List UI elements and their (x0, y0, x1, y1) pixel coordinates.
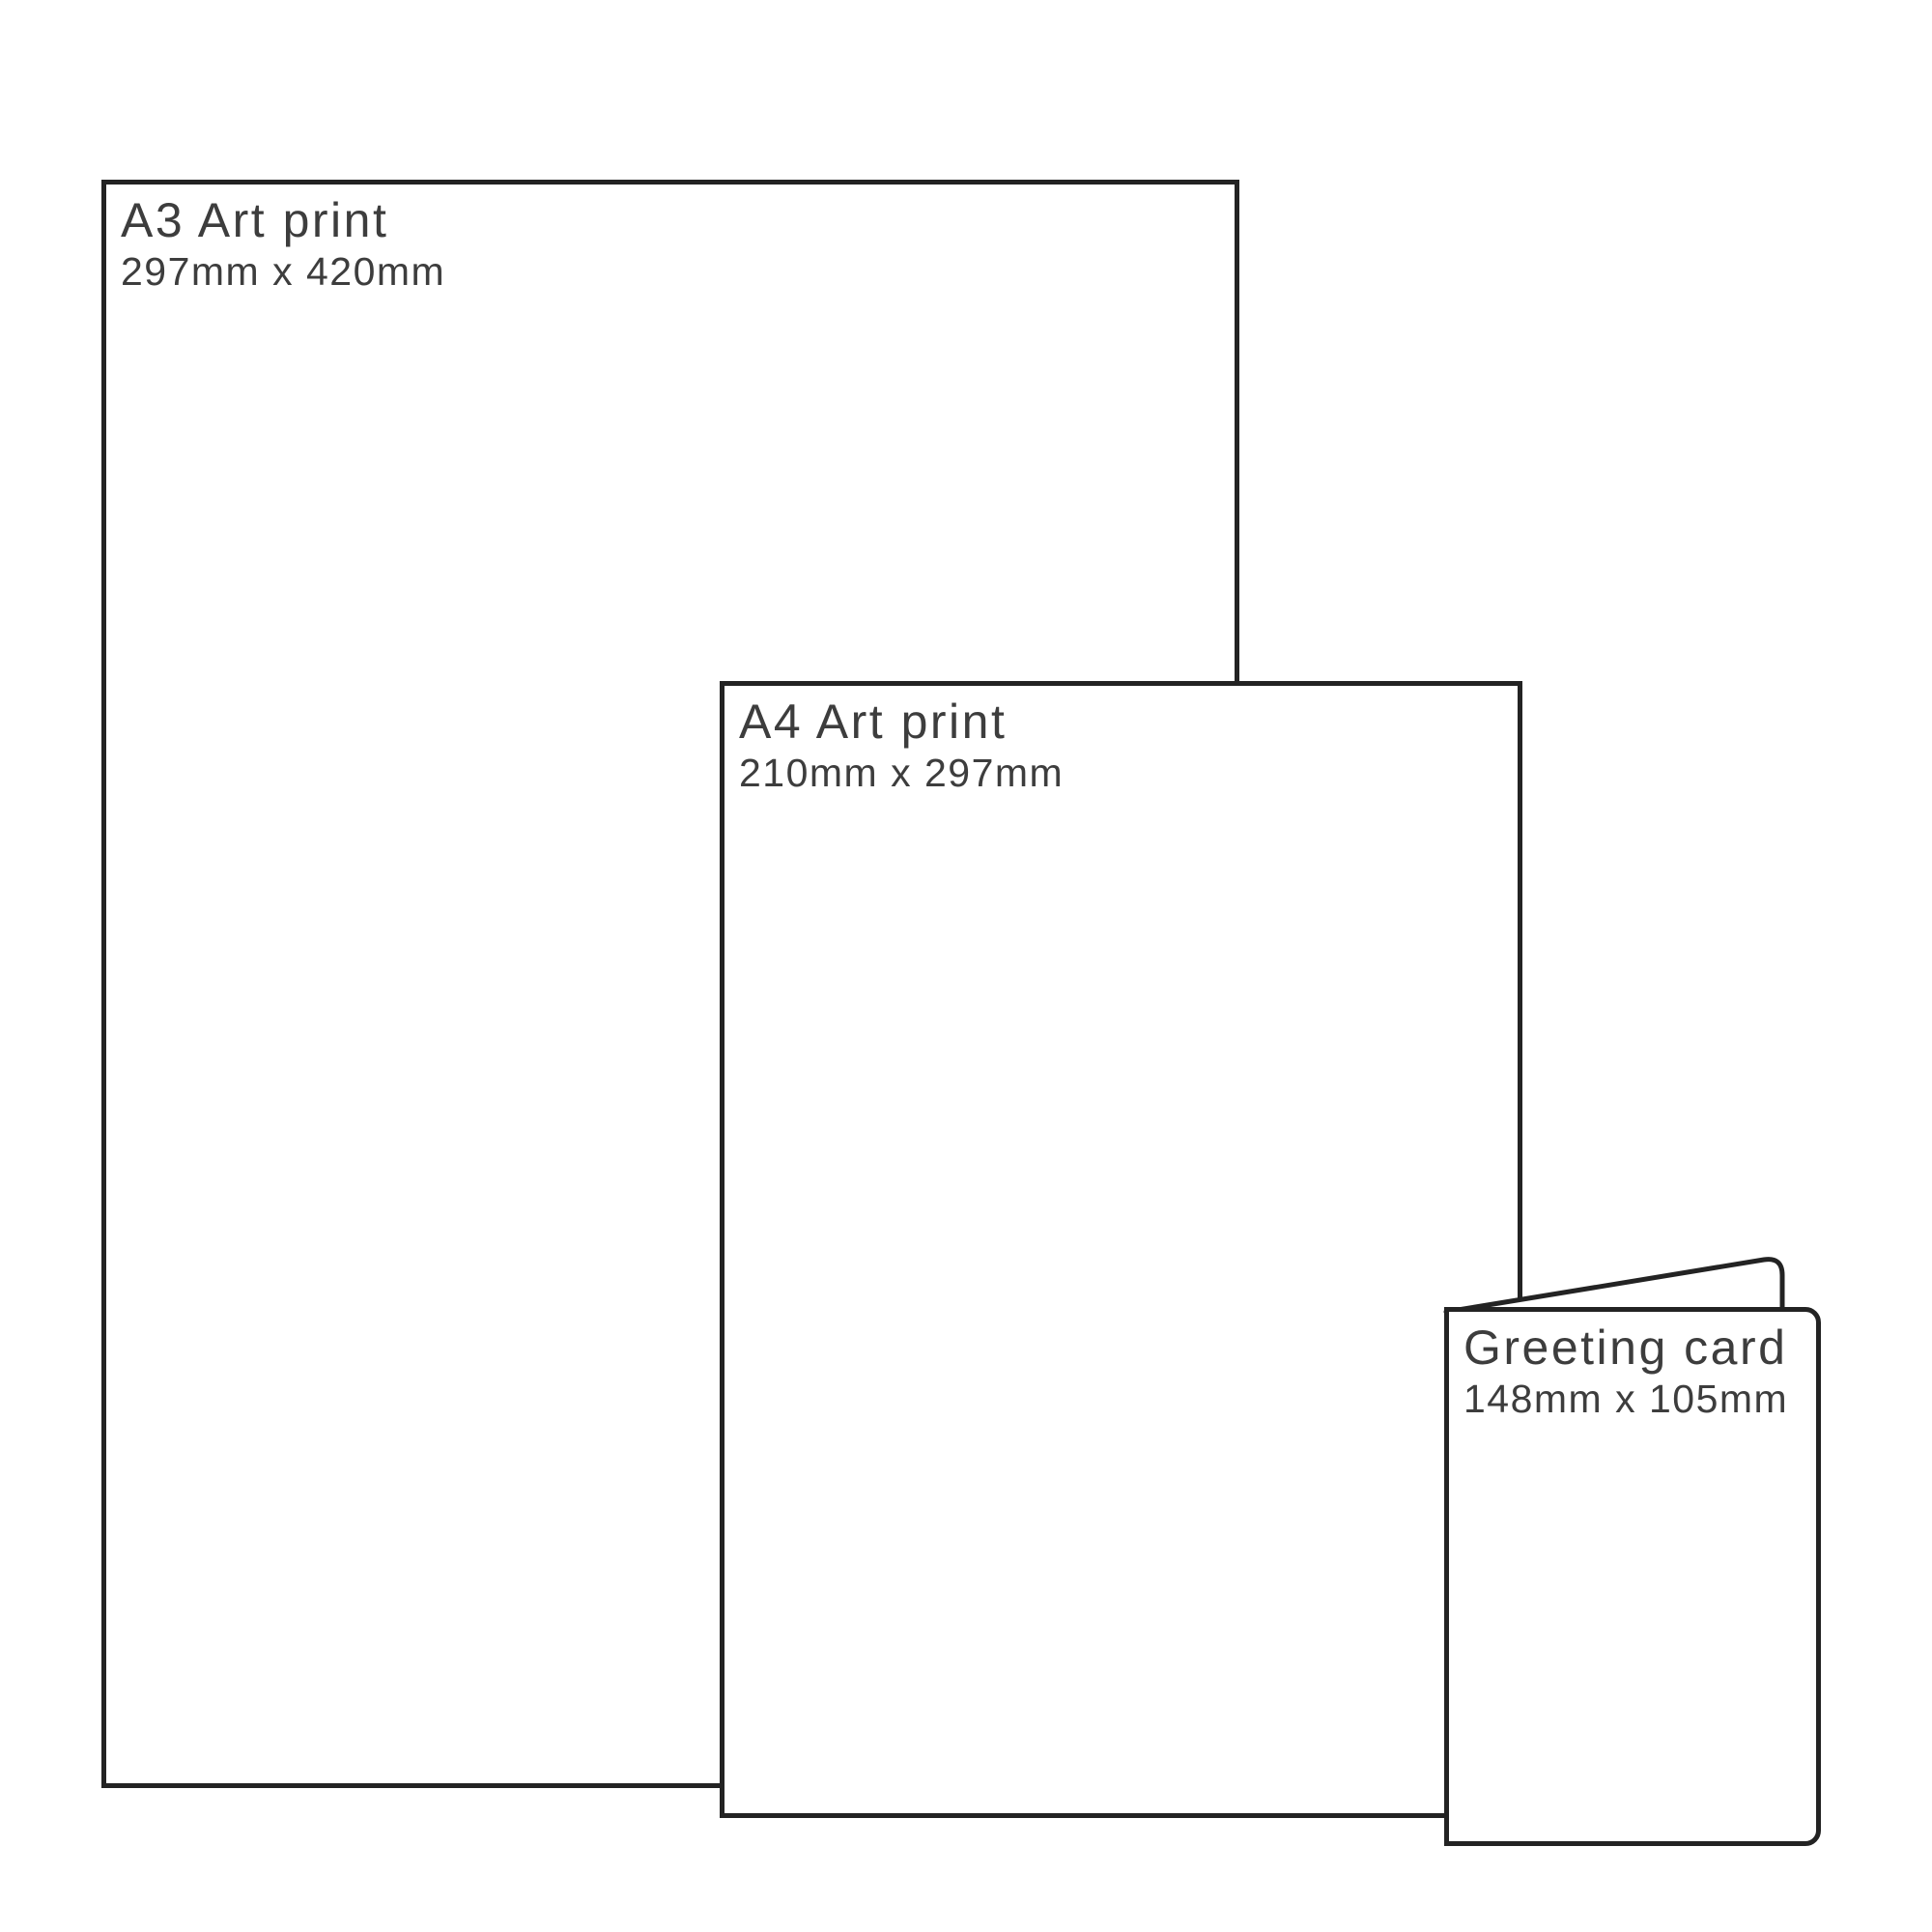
a3-dimensions: 297mm x 420mm (121, 249, 1235, 295)
a4-print-rectangle: A4 Art print 210mm x 297mm (720, 681, 1522, 1818)
greeting-card-dimensions: 148mm x 105mm (1463, 1377, 1816, 1422)
greeting-card-front: Greeting card 148mm x 105mm (1444, 1307, 1821, 1846)
a3-label: A3 Art print 297mm x 420mm (106, 185, 1235, 295)
a4-title: A4 Art print (739, 693, 1518, 751)
a3-title: A3 Art print (121, 191, 1235, 249)
a4-dimensions: 210mm x 297mm (739, 751, 1518, 796)
greeting-card-label: Greeting card 148mm x 105mm (1449, 1312, 1816, 1422)
a4-label: A4 Art print 210mm x 297mm (724, 686, 1518, 796)
size-comparison-diagram: A3 Art print 297mm x 420mm A4 Art print … (0, 0, 1932, 1932)
greeting-card-title: Greeting card (1463, 1319, 1816, 1377)
